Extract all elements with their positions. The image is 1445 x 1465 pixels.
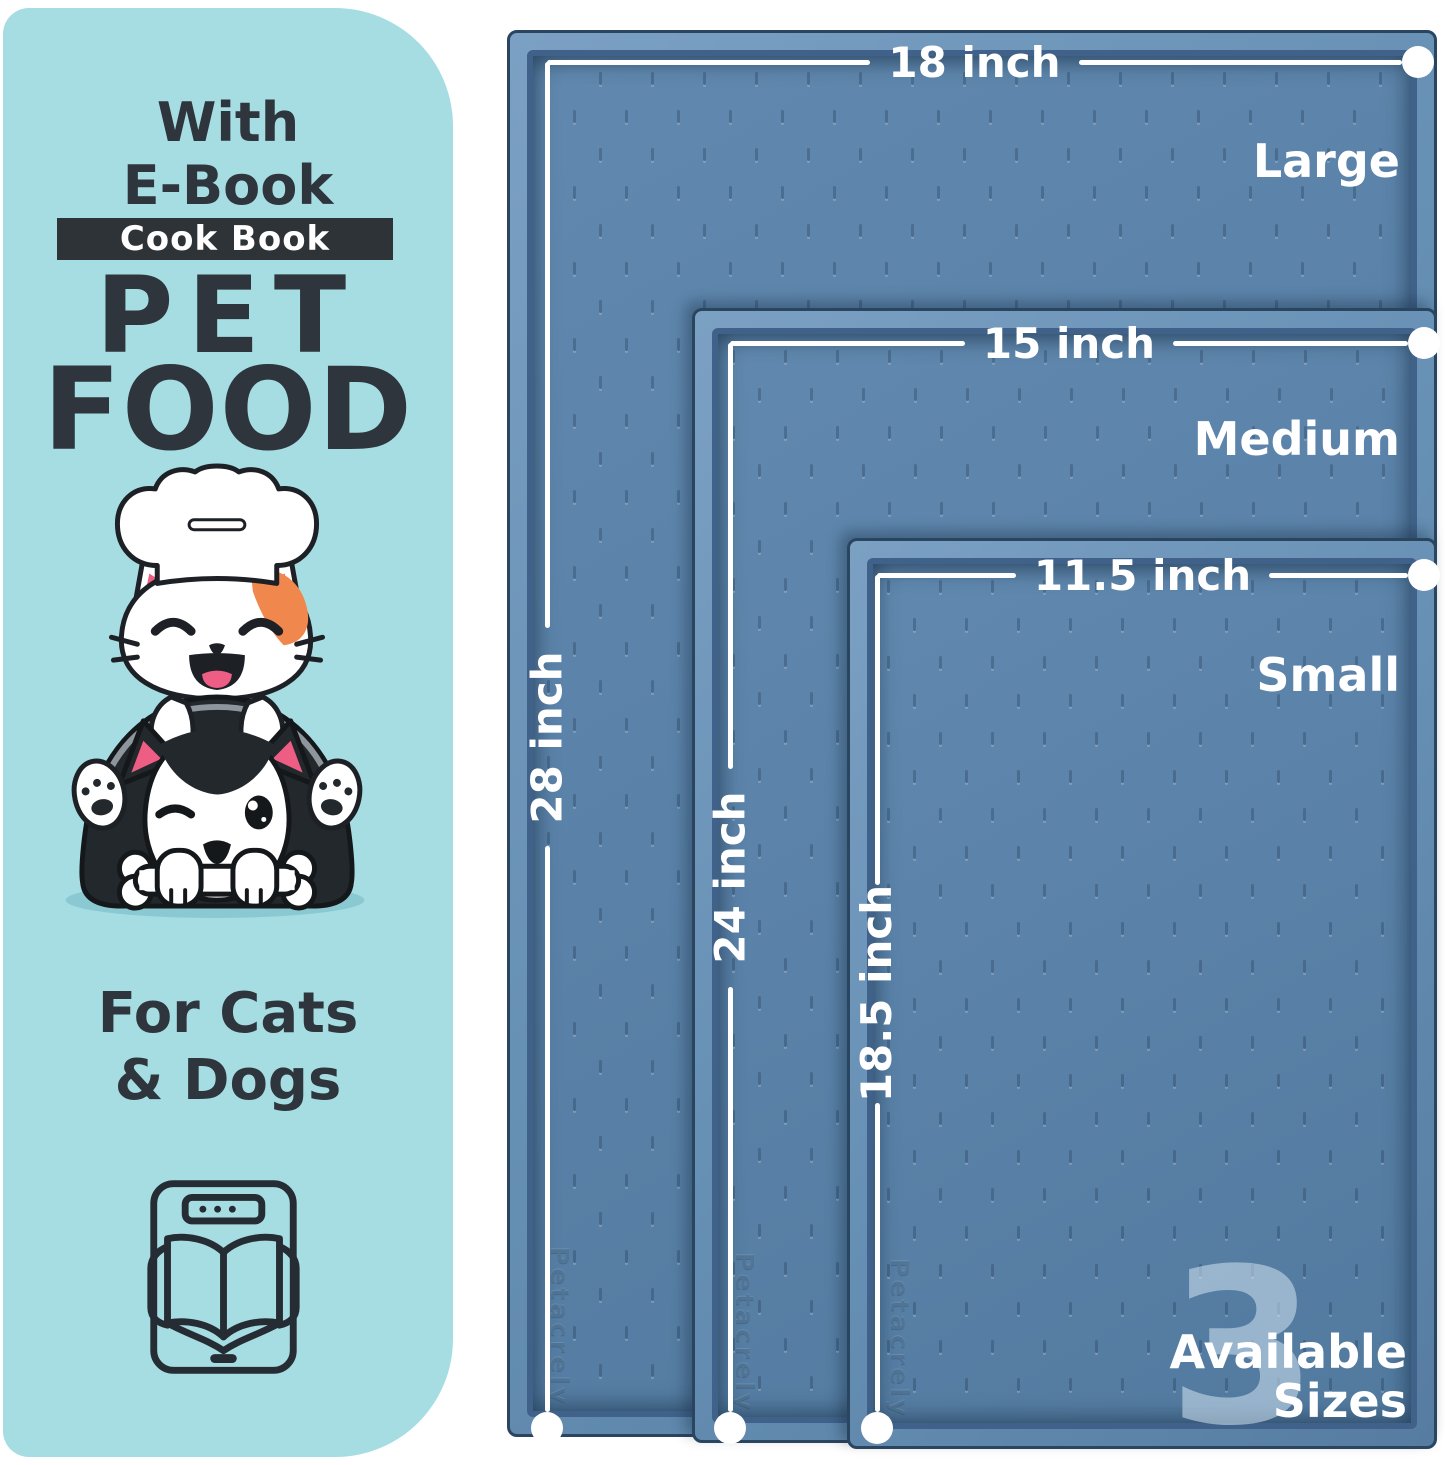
measure-endpoint-dot [531, 1412, 563, 1444]
measure-line-segment [730, 341, 965, 346]
ebook-note: With E-Book [3, 92, 453, 217]
measure-line-segment [547, 60, 870, 65]
measure-width-small: 11.5 inch [877, 558, 1440, 592]
ebook-tablet-icon [140, 1175, 307, 1378]
audience-line2: & Dogs [3, 1047, 453, 1114]
product-infographic: With E-Book Cook Book PET FOOD [0, 0, 1445, 1465]
measure-endpoint-dot [1402, 46, 1434, 78]
audience-line1: For Cats [3, 980, 453, 1047]
measure-height-small: 18.5 inch [854, 575, 900, 1444]
measure-line-segment [1079, 60, 1402, 65]
measure-width-large: 18 inch [547, 45, 1434, 79]
measure-endpoint-dot [1408, 559, 1440, 591]
info-panel: With E-Book Cook Book PET FOOD [3, 8, 453, 1457]
size-name-medium: Medium [1194, 412, 1400, 466]
measure-line-segment [875, 575, 880, 885]
ebook-note-line1: With [3, 92, 453, 155]
measure-endpoint-dot [714, 1412, 746, 1444]
height-label-medium: 24 inch [707, 769, 753, 987]
size-name-large: Large [1253, 134, 1400, 188]
measure-height-large: 28 inch [524, 62, 570, 1444]
measure-height-medium: 24 inch [707, 343, 753, 1444]
measure-endpoint-dot [861, 1412, 893, 1444]
measure-line-segment [1173, 341, 1408, 346]
measure-line-segment [545, 62, 550, 628]
audience-note: For Cats & Dogs [3, 980, 453, 1114]
sizes-badge-line2: Sizes [1273, 1374, 1407, 1428]
measure-line-segment [1269, 573, 1408, 578]
measure-width-medium: 15 inch [730, 326, 1440, 360]
measure-line-segment [875, 1103, 880, 1413]
title-food: FOOD [3, 353, 453, 467]
height-label-large: 28 inch [524, 628, 570, 846]
measure-line-segment [728, 343, 733, 769]
height-label-small: 18.5 inch [854, 885, 900, 1103]
width-label-small: 11.5 inch [1034, 551, 1251, 600]
ebook-note-line2: E-Book [3, 155, 453, 218]
size-name-small: Small [1256, 648, 1400, 702]
width-label-medium: 15 inch [983, 319, 1155, 368]
sizes-badge-line1: Available [1170, 1325, 1407, 1379]
measure-line-segment [545, 846, 550, 1412]
measure-endpoint-dot [1408, 327, 1440, 359]
cat-dog-chef-illustration [55, 462, 375, 920]
width-label-large: 18 inch [888, 38, 1060, 87]
measure-line-segment [728, 987, 733, 1413]
